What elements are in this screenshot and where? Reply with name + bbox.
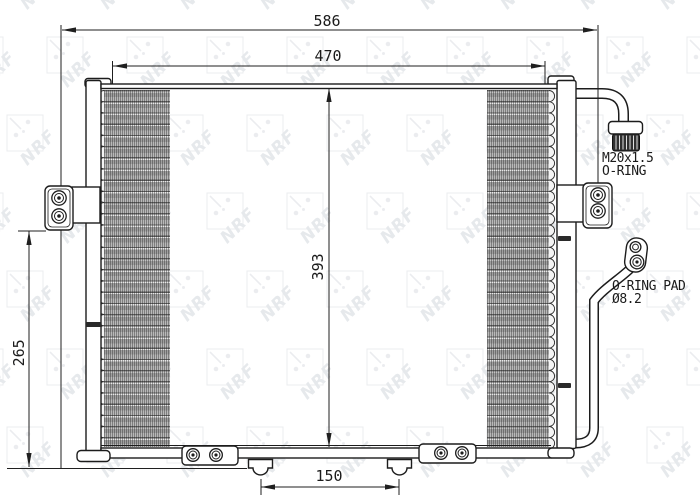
left-tank-bottom-cap <box>77 451 110 462</box>
dim-core-height-label: 393 <box>311 247 327 287</box>
left-bracket-plate <box>72 187 100 223</box>
dim-overall-width-label: 586 <box>307 14 347 30</box>
drawing-canvas <box>0 0 700 502</box>
threaded-fitting <box>609 122 643 152</box>
fitting-flange <box>609 122 643 135</box>
right-tank <box>557 81 576 449</box>
dim-mount-height-label: 265 <box>12 333 28 373</box>
dim-foot-spacing-label: 150 <box>309 469 349 485</box>
mounting-foot-right <box>388 460 412 475</box>
dim-core-width-label: 470 <box>308 49 348 65</box>
pad-diameter-label: Ø8.2 <box>612 293 641 307</box>
core-top-header <box>101 84 557 89</box>
oring-pad <box>624 237 649 273</box>
right-tank-bottom-cap <box>548 448 574 458</box>
technical-drawing: NRFNRFNRFNRFNRFNRFNRFNRFNRFNRFNRFNRFNRFN… <box>0 0 700 502</box>
left-tank <box>86 81 101 455</box>
thread-ridges <box>616 136 637 150</box>
fitting-seal-label: O-RING <box>602 165 646 179</box>
mounting-foot-left <box>249 460 273 475</box>
fin-loops-right <box>549 91 555 449</box>
core-bottom-header <box>101 448 551 458</box>
right-bracket-plate <box>557 185 585 222</box>
